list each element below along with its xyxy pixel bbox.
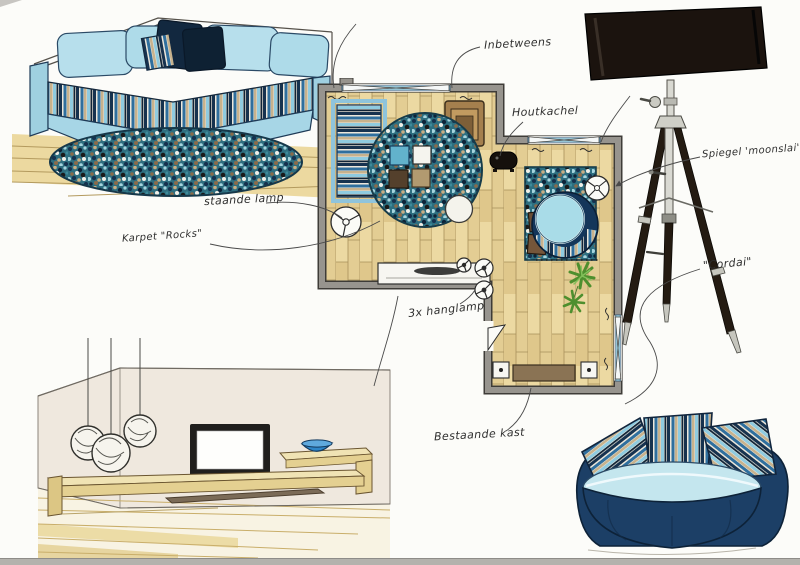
corner-sofa-sketch [8, 6, 338, 206]
label-houtkachel: Houtkachel [512, 105, 579, 118]
plan-wood-stove [490, 152, 517, 172]
lamp-tripod-legs [623, 128, 741, 353]
design-moodboard: Inbetweens Houtkachel Spiegel 'moonslai'… [0, 0, 800, 565]
wall-tv [190, 424, 270, 479]
round-rug [50, 128, 302, 196]
lamp-shade [585, 7, 767, 80]
round-loveseat-sketch [548, 388, 800, 565]
lamp-pole [641, 80, 686, 128]
plan-existing-cabinet [513, 365, 575, 381]
plan-tv-cabinet [378, 263, 490, 284]
label-inbetweens: Inbetweens [484, 36, 552, 51]
tv-wall-sketch [18, 338, 398, 560]
label-bestaande-kast: Bestaande kast [434, 427, 525, 443]
tripod-lamp-sketch [563, 2, 798, 364]
label-karpet: Karpet "Rocks" [122, 229, 203, 245]
plan-side-table [446, 196, 473, 223]
window-top-left [342, 84, 450, 92]
plan-floor-lamp-symbol [331, 207, 361, 237]
scan-edge-artifact [0, 558, 800, 565]
